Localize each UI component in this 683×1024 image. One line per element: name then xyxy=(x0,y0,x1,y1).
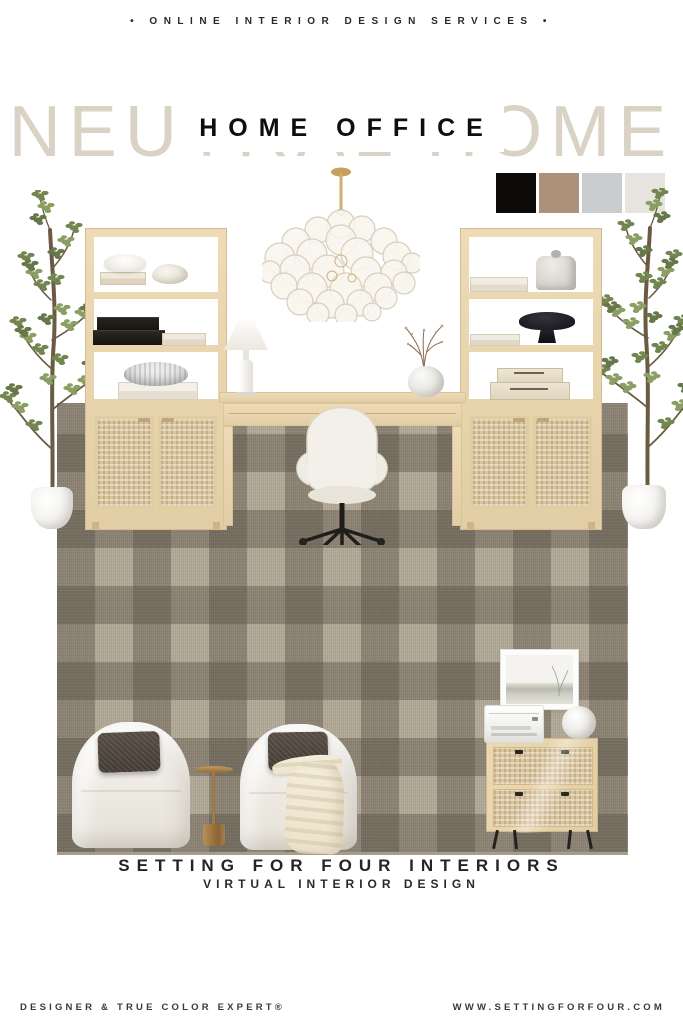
plate-stack xyxy=(104,254,146,272)
throw-blanket xyxy=(284,761,345,855)
art-branch-detail xyxy=(548,662,570,696)
book-stack xyxy=(162,333,206,346)
box-strap xyxy=(510,388,548,390)
file-cabinet xyxy=(486,738,598,832)
title-box: HOME OFFICE xyxy=(178,104,504,152)
round-vase xyxy=(408,366,444,397)
printer-tray xyxy=(491,726,531,730)
shelf-foot xyxy=(92,522,99,529)
white-round-vase xyxy=(562,706,596,739)
chair-seam xyxy=(81,790,180,792)
desk-chair xyxy=(283,383,401,545)
cane-cabinet-door xyxy=(158,416,217,509)
marble-canister xyxy=(536,256,576,290)
white-planter-left xyxy=(31,487,73,529)
shelf-foot xyxy=(467,522,474,529)
lamp-foot xyxy=(236,392,256,396)
board-title: HOME OFFICE xyxy=(188,114,494,143)
shelf-foot xyxy=(588,522,595,529)
door-pull xyxy=(138,418,150,422)
black-pedestal-bowl xyxy=(519,312,575,330)
door-pull xyxy=(162,418,174,422)
bubble-chandelier xyxy=(262,166,420,322)
services-tagline: • ONLINE INTERIOR DESIGN SERVICES • xyxy=(0,16,683,27)
black-box xyxy=(93,330,165,345)
studio-subtitle: VIRTUAL INTERIOR DESIGN xyxy=(0,877,683,891)
table-stem xyxy=(212,772,215,826)
fluted-bowl xyxy=(124,362,188,386)
decor-box xyxy=(490,382,570,400)
cabinet-light-sheen xyxy=(487,739,599,833)
lamp-shade xyxy=(224,320,268,350)
mood-board: • ONLINE INTERIOR DESIGN SERVICES • NEUT… xyxy=(0,0,683,1024)
printer-screen xyxy=(532,717,538,721)
desk-chair-graphic xyxy=(283,383,401,545)
table-lamp xyxy=(222,320,270,396)
black-box xyxy=(97,317,159,331)
gold-accent-table xyxy=(195,766,235,846)
framed-landscape-art xyxy=(500,649,579,710)
white-book-stack xyxy=(470,334,520,346)
lamp-neck xyxy=(243,350,249,360)
studio-title: SETTING FOR FOUR INTERIORS xyxy=(0,856,683,876)
coral-sculpture xyxy=(152,264,188,284)
footer-credential: DESIGNER & TRUE COLOR EXPERT® xyxy=(20,1002,285,1013)
lumbar-pillow-left xyxy=(97,731,160,773)
bowl-pedestal xyxy=(538,329,556,343)
vase-branches xyxy=(398,322,450,370)
white-planter-right xyxy=(622,485,666,529)
palette-swatch-black xyxy=(496,173,536,213)
desk-leg xyxy=(452,426,462,526)
canister-knob xyxy=(551,250,561,258)
box-strap xyxy=(514,372,544,374)
desk-leg xyxy=(223,426,233,526)
cane-cabinet-door xyxy=(470,416,529,509)
printer xyxy=(484,705,544,743)
printer-slot xyxy=(491,733,537,736)
lamp-base xyxy=(239,360,253,392)
book-stack xyxy=(100,272,146,285)
cane-cabinet-door xyxy=(95,416,154,509)
white-book-stack xyxy=(470,277,528,292)
printer-lid-line xyxy=(489,713,539,714)
cane-cabinet-door xyxy=(533,416,592,509)
footer-website: WWW.SETTINGFORFOUR.COM xyxy=(453,1002,665,1013)
door-pull xyxy=(537,418,549,422)
table-base xyxy=(203,824,225,846)
door-pull xyxy=(513,418,525,422)
